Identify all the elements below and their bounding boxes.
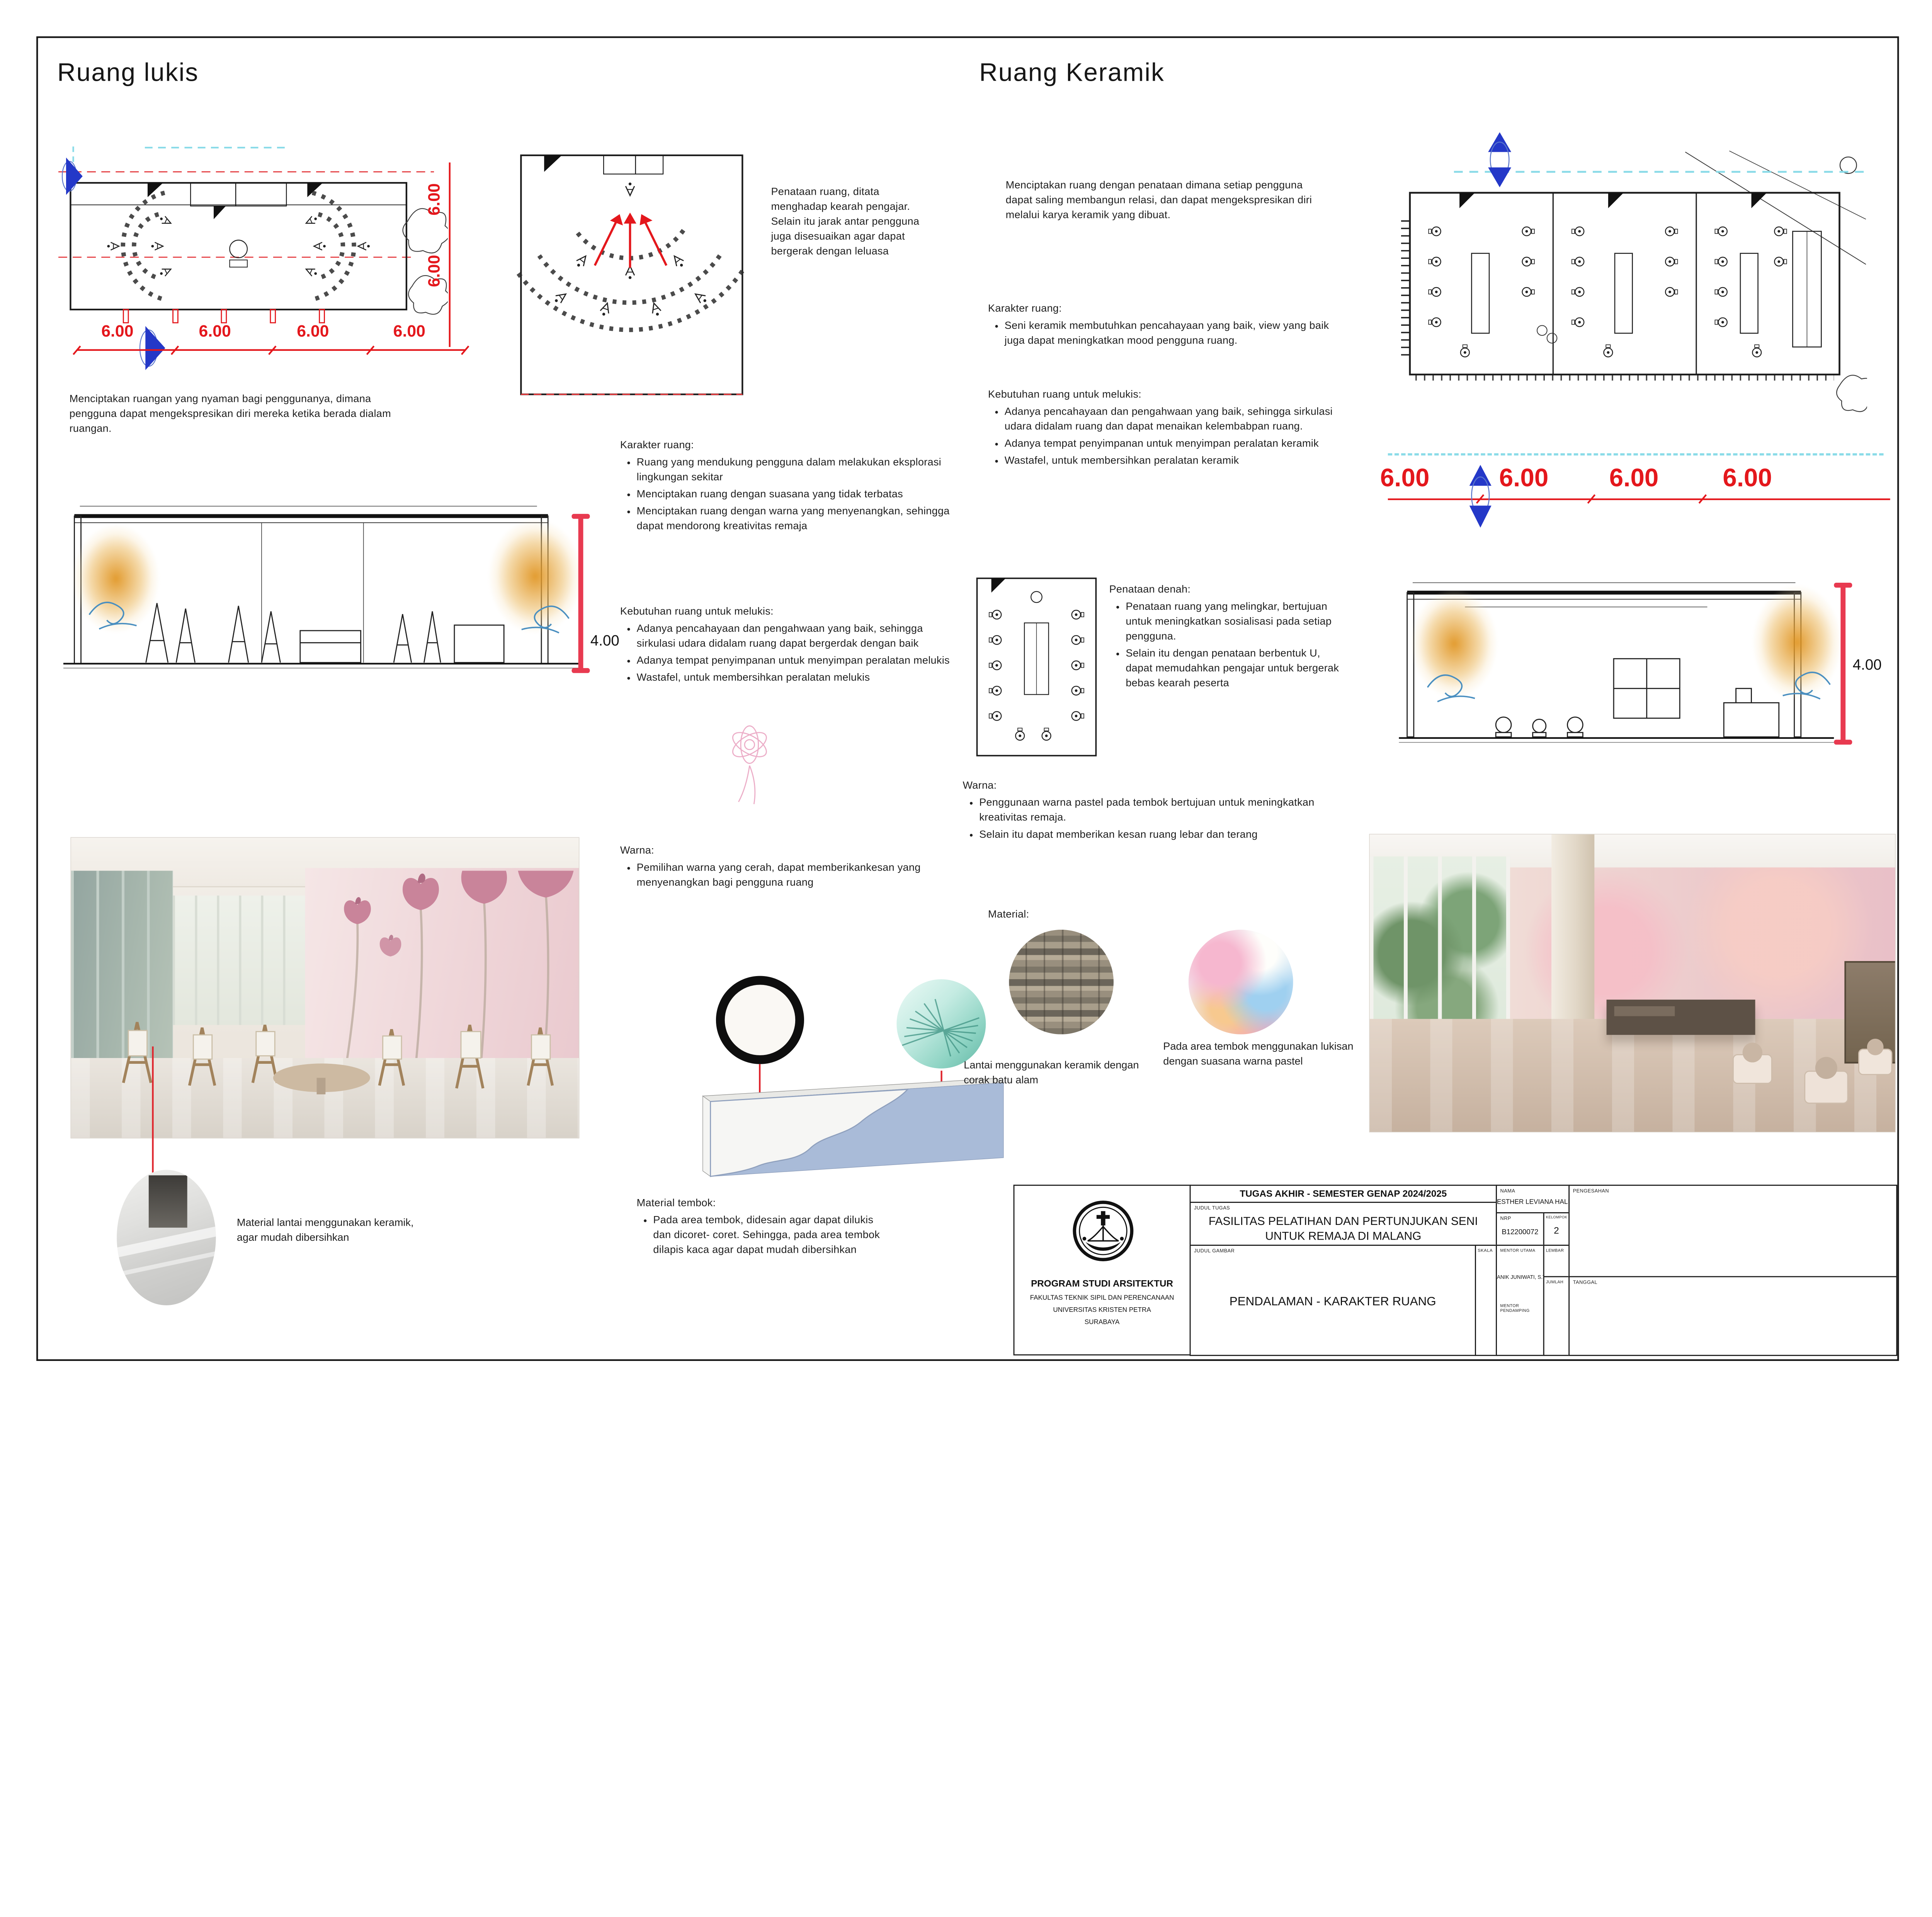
airflow-swirl-icon [1760,653,1837,708]
bullet-item: Wastafel, untuk membersihkan peralatan m… [637,671,951,685]
institution-line: UNIVERSITAS KRISTEN PETRA [1014,1306,1189,1313]
university-logo [1072,1200,1134,1262]
render-sideboard-shelf [1614,1006,1675,1016]
glass-material-circle [896,979,986,1068]
titleblock-header-cell: TUGAS AKHIR - SEMESTER GENAP 2024/2025 [1190,1185,1497,1203]
dim-label: 6.00 [425,255,444,287]
bullet-item: Seni keramik membutuhkan pencahayaan yan… [1005,319,1335,349]
bullet-item: Menciptakan ruang dengan warna yang meny… [637,504,951,534]
glass-sheets [896,979,986,1068]
intro-paragraph: Menciptakan ruangan yang nyaman bagi pen… [70,392,400,437]
bullet-item: Selain itu dapat memberikan kesan ruang … [979,828,1326,842]
warna-block: Warna: Penggunaan warna pastel pada temb… [963,779,1326,845]
airflow-swirl-icon [498,587,576,642]
cell-label: LEMBAR [1546,1248,1564,1253]
render-easels [71,970,579,1097]
render-ruang-keramik [1369,834,1896,1133]
nama-value: ESTHER LEVIANA HALIM P. [1497,1198,1568,1206]
dim-label: 6.00 [393,322,425,341]
material-heading: Material: [988,908,1029,922]
block-heading: Penataan denah: [1109,583,1341,597]
kebutuhan-ruang-block: Kebutuhan ruang untuk melukis: Adanya pe… [620,605,951,688]
dim-label: 6.00 [1499,463,1549,492]
section-marker-icon [1480,131,1519,188]
section-marker-icon [55,154,86,198]
cell-label: SKALA [1478,1248,1493,1253]
page-title-ruang-keramik: Ruang Keramik [979,57,1165,87]
airflow-swirl-icon [83,583,160,638]
bullet-item: Adanya tempat penyimpanan untuk menyimpa… [637,654,951,668]
penataan-denah-block: Penataan denah: Penataan ruang yang meli… [1109,583,1341,693]
mentor-utama-value: ANIK JUNIWATI, S.T., M.T [1497,1274,1543,1281]
floor-plan-arrangement [511,140,752,424]
karakter-ruang-block: Karakter ruang: Ruang yang mendukung pen… [620,439,951,536]
bullet-item: Pada area tembok, didesain agar dapat di… [653,1213,884,1258]
cell-label: JUDUL GAMBAR [1194,1248,1235,1254]
institution-line: FAKULTAS TEKNIK SIPIL DAN PERENCANAAN [1014,1294,1189,1301]
cell-label: PENGESAHAN [1573,1188,1609,1193]
pastel-paint-swatch [1189,930,1293,1034]
dim-label: 6.00 [1380,463,1430,492]
floor-plan-ruang-lukis [48,139,447,354]
floor-reflection [149,1175,187,1228]
block-heading: Material tembok: [637,1196,884,1211]
bullet-item: Penggunaan warna pastel pada tembok bert… [979,796,1326,826]
dim-label: 6.00 [101,322,133,341]
cell-label: JUDUL TUGAS [1194,1205,1230,1211]
cell-label: KELOMPOK [1546,1216,1567,1220]
render-pottery-wheels [1722,1032,1895,1132]
block-heading: Warna: [963,779,1326,793]
section-marker-icon [1463,464,1498,530]
bullet-item: Adanya pencahayaan dan pengahwaan yang b… [1005,405,1335,435]
material-tembok-block: Material tembok: Pada area tembok, dides… [637,1196,884,1260]
bullet-item: Menciptakan ruang dengan suasana yang ti… [637,487,951,502]
titleblock-header: TUGAS AKHIR - SEMESTER GENAP 2024/2025 [1191,1189,1496,1200]
kelompok-value: 2 [1544,1225,1569,1237]
titleblock-pengesahan-cell: PENGESAHAN [1568,1185,1897,1277]
titleblock-skala-cell: SKALA [1475,1245,1498,1356]
institution-line: PROGRAM STUDI ARSITEKTUR [1014,1278,1189,1289]
floor-plan-ruang-keramik [1377,149,1867,457]
bullet-item: Pemilihan warna yang cerah, dapat member… [637,861,951,891]
block-heading: Kebutuhan ruang untuk melukis: [620,605,951,619]
kebutuhan-ruang-block: Kebutuhan ruang untuk melukis: Adanya pe… [988,388,1335,471]
dim-label: 6.00 [199,322,231,341]
wall-panel-diagram [692,1074,1014,1181]
bullet-item: Penataan ruang yang melingkar, bertujuan… [1126,600,1340,644]
bullet-item: Adanya pencahayaan dan pengahwaan yang b… [637,622,951,651]
material-lantai-caption: Material lantai menggunakan keramik, aga… [237,1216,418,1246]
plan-note: Penataan ruang, ditata menghadap kearah … [771,185,921,259]
dim-label: 4.00 [1853,657,1882,674]
titleblock-judul-tugas-cell: JUDUL TUGAS FASILITAS PELATIHAN DAN PERT… [1190,1202,1497,1246]
render-sideboard [1607,1000,1755,1035]
stone-material-swatch [1009,930,1114,1034]
dim-label: 6.00 [1723,463,1772,492]
block-heading: Karakter ruang: [988,302,1335,316]
titleblock-lembar-cell: LEMBAR [1543,1245,1570,1277]
cell-label: NAMA [1500,1188,1515,1193]
leader-line [152,1046,153,1183]
cell-label: MENTOR UTAMA [1500,1248,1536,1253]
height-dimension-bar [578,515,583,672]
bullet-item: Wastafel, untuk membersihkan peralatan k… [1005,454,1335,468]
judul-gambar-value: PENDALAMAN - KARAKTER RUANG [1191,1294,1475,1308]
judul-tugas-value: FASILITAS PELATIHAN DAN PERTUNJUKAN SENI… [1198,1214,1488,1244]
warna-block: Warna: Pemilihan warna yang cerah, dapat… [620,844,951,893]
height-dimension-bar [1840,584,1845,743]
bullet-item: Adanya tempat penyimpanan untuk menyimpa… [1005,437,1335,451]
cell-label: JUMLAH [1546,1279,1563,1284]
titleblock-judul-gambar-cell: JUDUL GAMBAR PENDALAMAN - KARAKTER RUANG [1190,1245,1476,1356]
dim-label: 6.00 [297,322,329,341]
titleblock-jumlah-cell: JUMLAH [1543,1276,1570,1356]
presentation-board: Ruang lukis [0,0,1932,1366]
page-title-ruang-lukis: Ruang lukis [57,57,199,87]
block-heading: Kebutuhan ruang untuk melukis: [988,388,1335,402]
material-tembok-caption: Pada area tembok menggunakan lukisan den… [1163,1040,1356,1070]
dim-label: 6.00 [425,183,444,215]
cell-label: NRP [1500,1216,1511,1221]
dim-label: 4.00 [590,632,619,649]
titleblock-logo-cell: PROGRAM STUDI ARSITEKTUR FAKULTAS TEKNIK… [1014,1185,1191,1356]
intro-paragraph: Menciptakan ruang dengan penataan dimana… [1006,179,1331,223]
bullet-item: Selain itu dengan penataan berbentuk U, … [1126,646,1340,691]
airflow-swirl-icon [1421,655,1498,711]
cell-label: TANGGAL [1573,1279,1597,1285]
cyan-guide-line [1388,453,1884,456]
floor-material-photo [117,1170,216,1305]
block-heading: Warna: [620,844,951,859]
section-marker-icon [131,321,170,374]
titleblock-tanggal-cell: TANGGAL [1568,1276,1897,1356]
floor-plan-u-arrangement [969,571,1104,764]
titleblock-mentor-cell: MENTOR UTAMA ANIK JUNIWATI, S.T., M.T ME… [1496,1245,1544,1356]
floor-shine [117,1222,216,1259]
karakter-ruang-block: Karakter ruang: Seni keramik membutuhkan… [988,302,1335,351]
paint-material-circle [716,976,804,1064]
block-heading: Karakter ruang: [620,439,951,453]
titleblock-nrp-cell: NRP B12200072 [1496,1212,1544,1246]
cell-label: MENTOR PENDAMPING [1500,1303,1543,1313]
titleblock-nama-cell: NAMA ESTHER LEVIANA HALIM P. [1496,1185,1570,1213]
institution-line: SURABAYA [1014,1318,1189,1326]
dimension-line [449,162,451,347]
titleblock-kelompok-cell: KELOMPOK 2 [1543,1212,1570,1246]
render-ruang-lukis [70,837,579,1138]
bullet-item: Ruang yang mendukung pengguna dalam mela… [637,456,951,485]
flower-sketch-icon [697,716,802,810]
dim-label: 6.00 [1609,463,1659,492]
nrp-value: B12200072 [1497,1228,1543,1236]
material-lantai-caption: Lantai menggunakan keramik dengan corak … [964,1058,1140,1088]
